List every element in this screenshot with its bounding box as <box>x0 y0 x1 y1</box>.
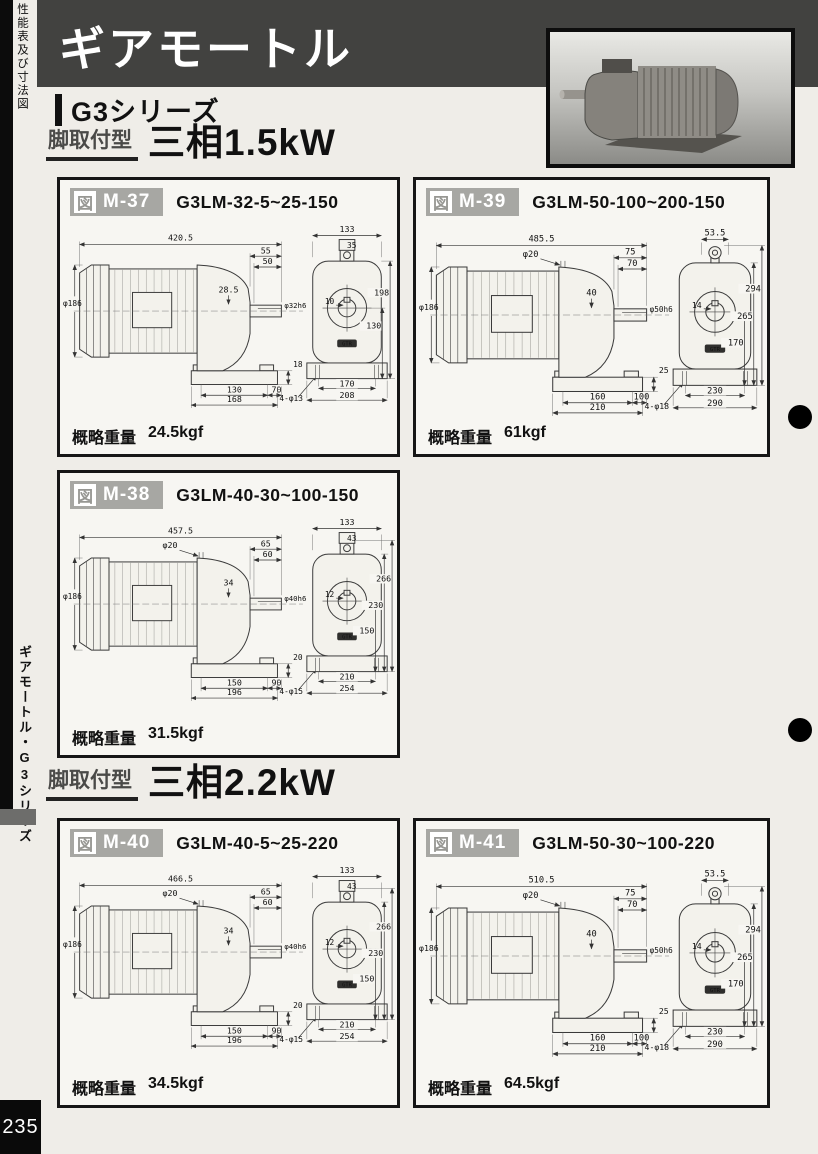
series-accent-bar <box>55 94 62 126</box>
dim-label: φ20 <box>163 888 178 898</box>
model-code: G3LM-40-5~25-220 <box>176 833 338 854</box>
dim-label: 4-φ18 <box>645 1042 670 1052</box>
weight-note: 概略重量 34.5kgf <box>72 1075 203 1099</box>
gtr-logo: GTR <box>710 347 721 353</box>
punch-hole-dot <box>788 718 812 742</box>
figure-label: 図 M-38 <box>70 481 163 509</box>
weight-value: 61kgf <box>504 424 546 448</box>
dim-label: 150 <box>359 625 374 635</box>
dim-label: 230 <box>707 1028 723 1038</box>
weight-value: 64.5kgf <box>504 1075 559 1099</box>
catalog-page: 性能表及び寸法図 ギアモートル・G3シリーズ ギアモートル <box>0 0 818 1154</box>
dim-label: φ50h6 <box>650 305 673 314</box>
dim-label: 75 <box>625 889 635 899</box>
dim-label: φ40h6 <box>284 594 306 603</box>
index-tab-marker <box>0 809 36 825</box>
figure-number: M-37 <box>103 191 150 213</box>
figure-label: 図 M-41 <box>426 829 519 857</box>
dimension-drawing: 485.5φ20757040φ50h6φ186251601002104-φ18G… <box>418 218 765 420</box>
gtr-logo: GTR <box>342 983 352 989</box>
dim-label: 18 <box>293 360 303 369</box>
dim-label: 70 <box>627 900 637 910</box>
dim-label: 40 <box>586 930 596 940</box>
dimension-drawing-area: 510.5φ20757040φ50h6φ186251601002104-φ18G… <box>418 859 765 1061</box>
dim-label: 70 <box>627 259 637 269</box>
dim-label: 198 <box>374 287 389 297</box>
dimension-drawing-area: 457.5φ20656034φ40h6φ18620150901964-φ15GT… <box>62 511 395 705</box>
gtr-logo: GTR <box>342 635 352 641</box>
figure-box-m40: 図 M-40 G3LM-40-5~25-220 466.5φ20656034φ4… <box>57 818 400 1108</box>
dim-label: 170 <box>728 980 744 990</box>
dim-label: 210 <box>340 671 355 681</box>
punch-hole-dot <box>788 405 812 429</box>
dim-label: 34 <box>223 577 233 587</box>
dim-label: 160 <box>590 393 606 403</box>
dim-label: 75 <box>625 248 635 258</box>
mount-type-badge: 脚取付型 <box>46 764 138 801</box>
section-heading-2p2kw: 脚取付型 三相2.2kW <box>46 764 336 801</box>
zu-badge: 図 <box>430 832 452 854</box>
dim-label: 466.5 <box>168 874 193 884</box>
dim-label: 28.5 <box>218 284 238 294</box>
dim-label: 14 <box>692 941 702 951</box>
dim-label: 150 <box>227 1025 242 1035</box>
figure-label: 図 M-40 <box>70 829 163 857</box>
dim-label: φ20 <box>523 250 539 260</box>
dim-label: 265 <box>737 312 753 322</box>
dim-label: 265 <box>737 953 753 963</box>
dim-label: φ186 <box>63 592 82 601</box>
dim-label: 20 <box>293 653 303 662</box>
weight-value: 31.5kgf <box>148 725 203 749</box>
weight-label: 概略重量 <box>428 424 492 448</box>
dim-label: 25 <box>659 365 669 375</box>
dim-label: 294 <box>745 284 761 294</box>
figure-number: M-39 <box>459 191 506 213</box>
dim-label: 170 <box>340 378 355 388</box>
model-code: G3LM-40-30~100-150 <box>176 485 359 506</box>
dim-label: 25 <box>659 1006 669 1016</box>
figure-box-m41: 図 M-41 G3LM-50-30~100-220 510.5φ20757040… <box>413 818 770 1108</box>
dimension-drawing: 510.5φ20757040φ50h6φ186251601002104-φ18G… <box>418 859 765 1061</box>
dim-label: 53.5 <box>705 869 726 879</box>
dim-label: 420.5 <box>168 233 193 243</box>
gtr-logo: GTR <box>342 342 352 348</box>
side-top-label: 性能表及び寸法図 <box>14 3 30 111</box>
dim-label: 170 <box>728 339 744 349</box>
dim-label: 150 <box>359 973 374 983</box>
dim-label: 210 <box>590 1044 606 1054</box>
dim-label: φ186 <box>419 302 439 312</box>
figure-label: 図 M-37 <box>70 188 163 216</box>
dim-label: 133 <box>340 224 355 234</box>
dim-label: 90 <box>271 1025 281 1035</box>
dim-label: 133 <box>340 865 355 875</box>
mount-type-badge: 脚取付型 <box>46 124 138 161</box>
dim-label: 12 <box>325 938 335 947</box>
figure-box-m39: 図 M-39 G3LM-50-100~200-150 485.5φ2075704… <box>413 177 770 457</box>
page-number: 235 <box>0 1100 41 1154</box>
dim-label: 457.5 <box>168 526 193 536</box>
dim-label: 254 <box>340 1031 355 1041</box>
weight-note: 概略重量 31.5kgf <box>72 725 203 749</box>
dim-label: 90 <box>271 677 281 687</box>
dim-label: 43 <box>347 534 357 543</box>
dim-label: 294 <box>745 925 761 935</box>
dim-label: 230 <box>707 387 723 397</box>
dim-label: 50 <box>263 256 273 266</box>
dim-label: 60 <box>263 897 273 907</box>
dim-label: φ20 <box>163 540 178 550</box>
dim-label: 40 <box>586 289 596 299</box>
dim-label: φ50h6 <box>650 946 673 955</box>
dim-label: φ20 <box>523 891 539 901</box>
dim-label: 130 <box>366 321 381 331</box>
dim-label: 14 <box>692 300 702 310</box>
dim-label: 12 <box>325 590 335 599</box>
model-code: G3LM-50-30~100-220 <box>532 833 715 854</box>
figure-number: M-40 <box>103 832 150 854</box>
dim-label: 168 <box>227 394 242 404</box>
binding-strip <box>0 0 13 812</box>
zu-badge: 図 <box>74 484 96 506</box>
dim-label: 510.5 <box>528 875 554 885</box>
zu-badge: 図 <box>74 191 96 213</box>
figure-box-m38: 図 M-38 G3LM-40-30~100-150 457.5φ20656034… <box>57 470 400 758</box>
dim-label: 70 <box>271 384 281 394</box>
dimension-drawing-area: 466.5φ20656034φ40h6φ18620150901964-φ15GT… <box>62 859 395 1053</box>
dim-label: 160 <box>590 1034 606 1044</box>
dim-label: φ40h6 <box>284 942 306 951</box>
dim-label: 196 <box>227 687 242 697</box>
dim-label: 53.5 <box>705 228 726 238</box>
dim-label: φ186 <box>63 940 82 949</box>
dim-label: 485.5 <box>528 234 554 244</box>
dim-label: 43 <box>347 882 357 891</box>
dimension-drawing: 457.5φ20656034φ40h6φ18620150901964-φ15GT… <box>62 511 395 705</box>
weight-value: 34.5kgf <box>148 1075 203 1099</box>
weight-label: 概略重量 <box>72 1075 136 1099</box>
dim-label: 210 <box>590 403 606 413</box>
dim-label: 290 <box>707 1040 723 1050</box>
weight-note: 概略重量 61kgf <box>428 424 546 448</box>
product-photo <box>546 28 795 168</box>
weight-value: 24.5kgf <box>148 424 203 448</box>
dim-label: 230 <box>368 948 383 958</box>
dim-label: 55 <box>261 245 271 255</box>
model-code: G3LM-32-5~25-150 <box>176 192 338 213</box>
dim-label: 254 <box>340 683 355 693</box>
zu-badge: 図 <box>74 832 96 854</box>
dim-label: 60 <box>263 549 273 559</box>
dim-label: 35 <box>347 241 357 250</box>
dimension-drawing-area: 420.5555028.5φ32h6φ18618130701684-φ13GTR… <box>62 218 395 412</box>
dimension-drawing-area: 485.5φ20757040φ50h6φ186251601002104-φ18G… <box>418 218 765 420</box>
dim-label: 266 <box>376 922 391 932</box>
dim-label: 290 <box>707 399 723 409</box>
dim-label: 208 <box>340 390 355 400</box>
gearmotor-photo-image <box>550 32 791 164</box>
figure-number: M-41 <box>459 832 506 854</box>
figure-box-m37: 図 M-37 G3LM-32-5~25-150 420.5555028.5φ32… <box>57 177 400 457</box>
figure-label: 図 M-39 <box>426 188 519 216</box>
dim-label: 230 <box>368 600 383 610</box>
dimension-drawing: 466.5φ20656034φ40h6φ18620150901964-φ15GT… <box>62 859 395 1053</box>
dim-label: 65 <box>261 538 271 548</box>
weight-note: 概略重量 64.5kgf <box>428 1075 559 1099</box>
dim-label: φ186 <box>419 943 439 953</box>
dim-label: 133 <box>340 517 355 527</box>
model-code: G3LM-50-100~200-150 <box>532 192 725 213</box>
dim-label: 4-φ18 <box>645 401 670 411</box>
dim-label: 65 <box>261 886 271 896</box>
dim-label: 210 <box>340 1019 355 1029</box>
dim-label: 10 <box>325 297 335 306</box>
dim-label: 34 <box>223 925 233 935</box>
dim-label: 266 <box>376 574 391 584</box>
section-heading-1p5kw: 脚取付型 三相1.5kW <box>46 124 336 161</box>
section-title: 三相2.2kW <box>148 764 336 801</box>
figure-number: M-38 <box>103 484 150 506</box>
dim-label: φ32h6 <box>284 301 306 310</box>
dim-label: 20 <box>293 1001 303 1010</box>
weight-label: 概略重量 <box>72 424 136 448</box>
gtr-logo: GTR <box>710 988 721 994</box>
weight-label: 概略重量 <box>72 725 136 749</box>
dimension-drawing: 420.5555028.5φ32h6φ18618130701684-φ13GTR… <box>62 218 395 412</box>
weight-note: 概略重量 24.5kgf <box>72 424 203 448</box>
dim-label: φ186 <box>63 299 82 308</box>
dim-label: 130 <box>227 384 242 394</box>
dim-label: 196 <box>227 1035 242 1045</box>
section-title: 三相1.5kW <box>148 124 336 161</box>
dim-label: 150 <box>227 677 242 687</box>
weight-label: 概略重量 <box>428 1075 492 1099</box>
zu-badge: 図 <box>430 191 452 213</box>
